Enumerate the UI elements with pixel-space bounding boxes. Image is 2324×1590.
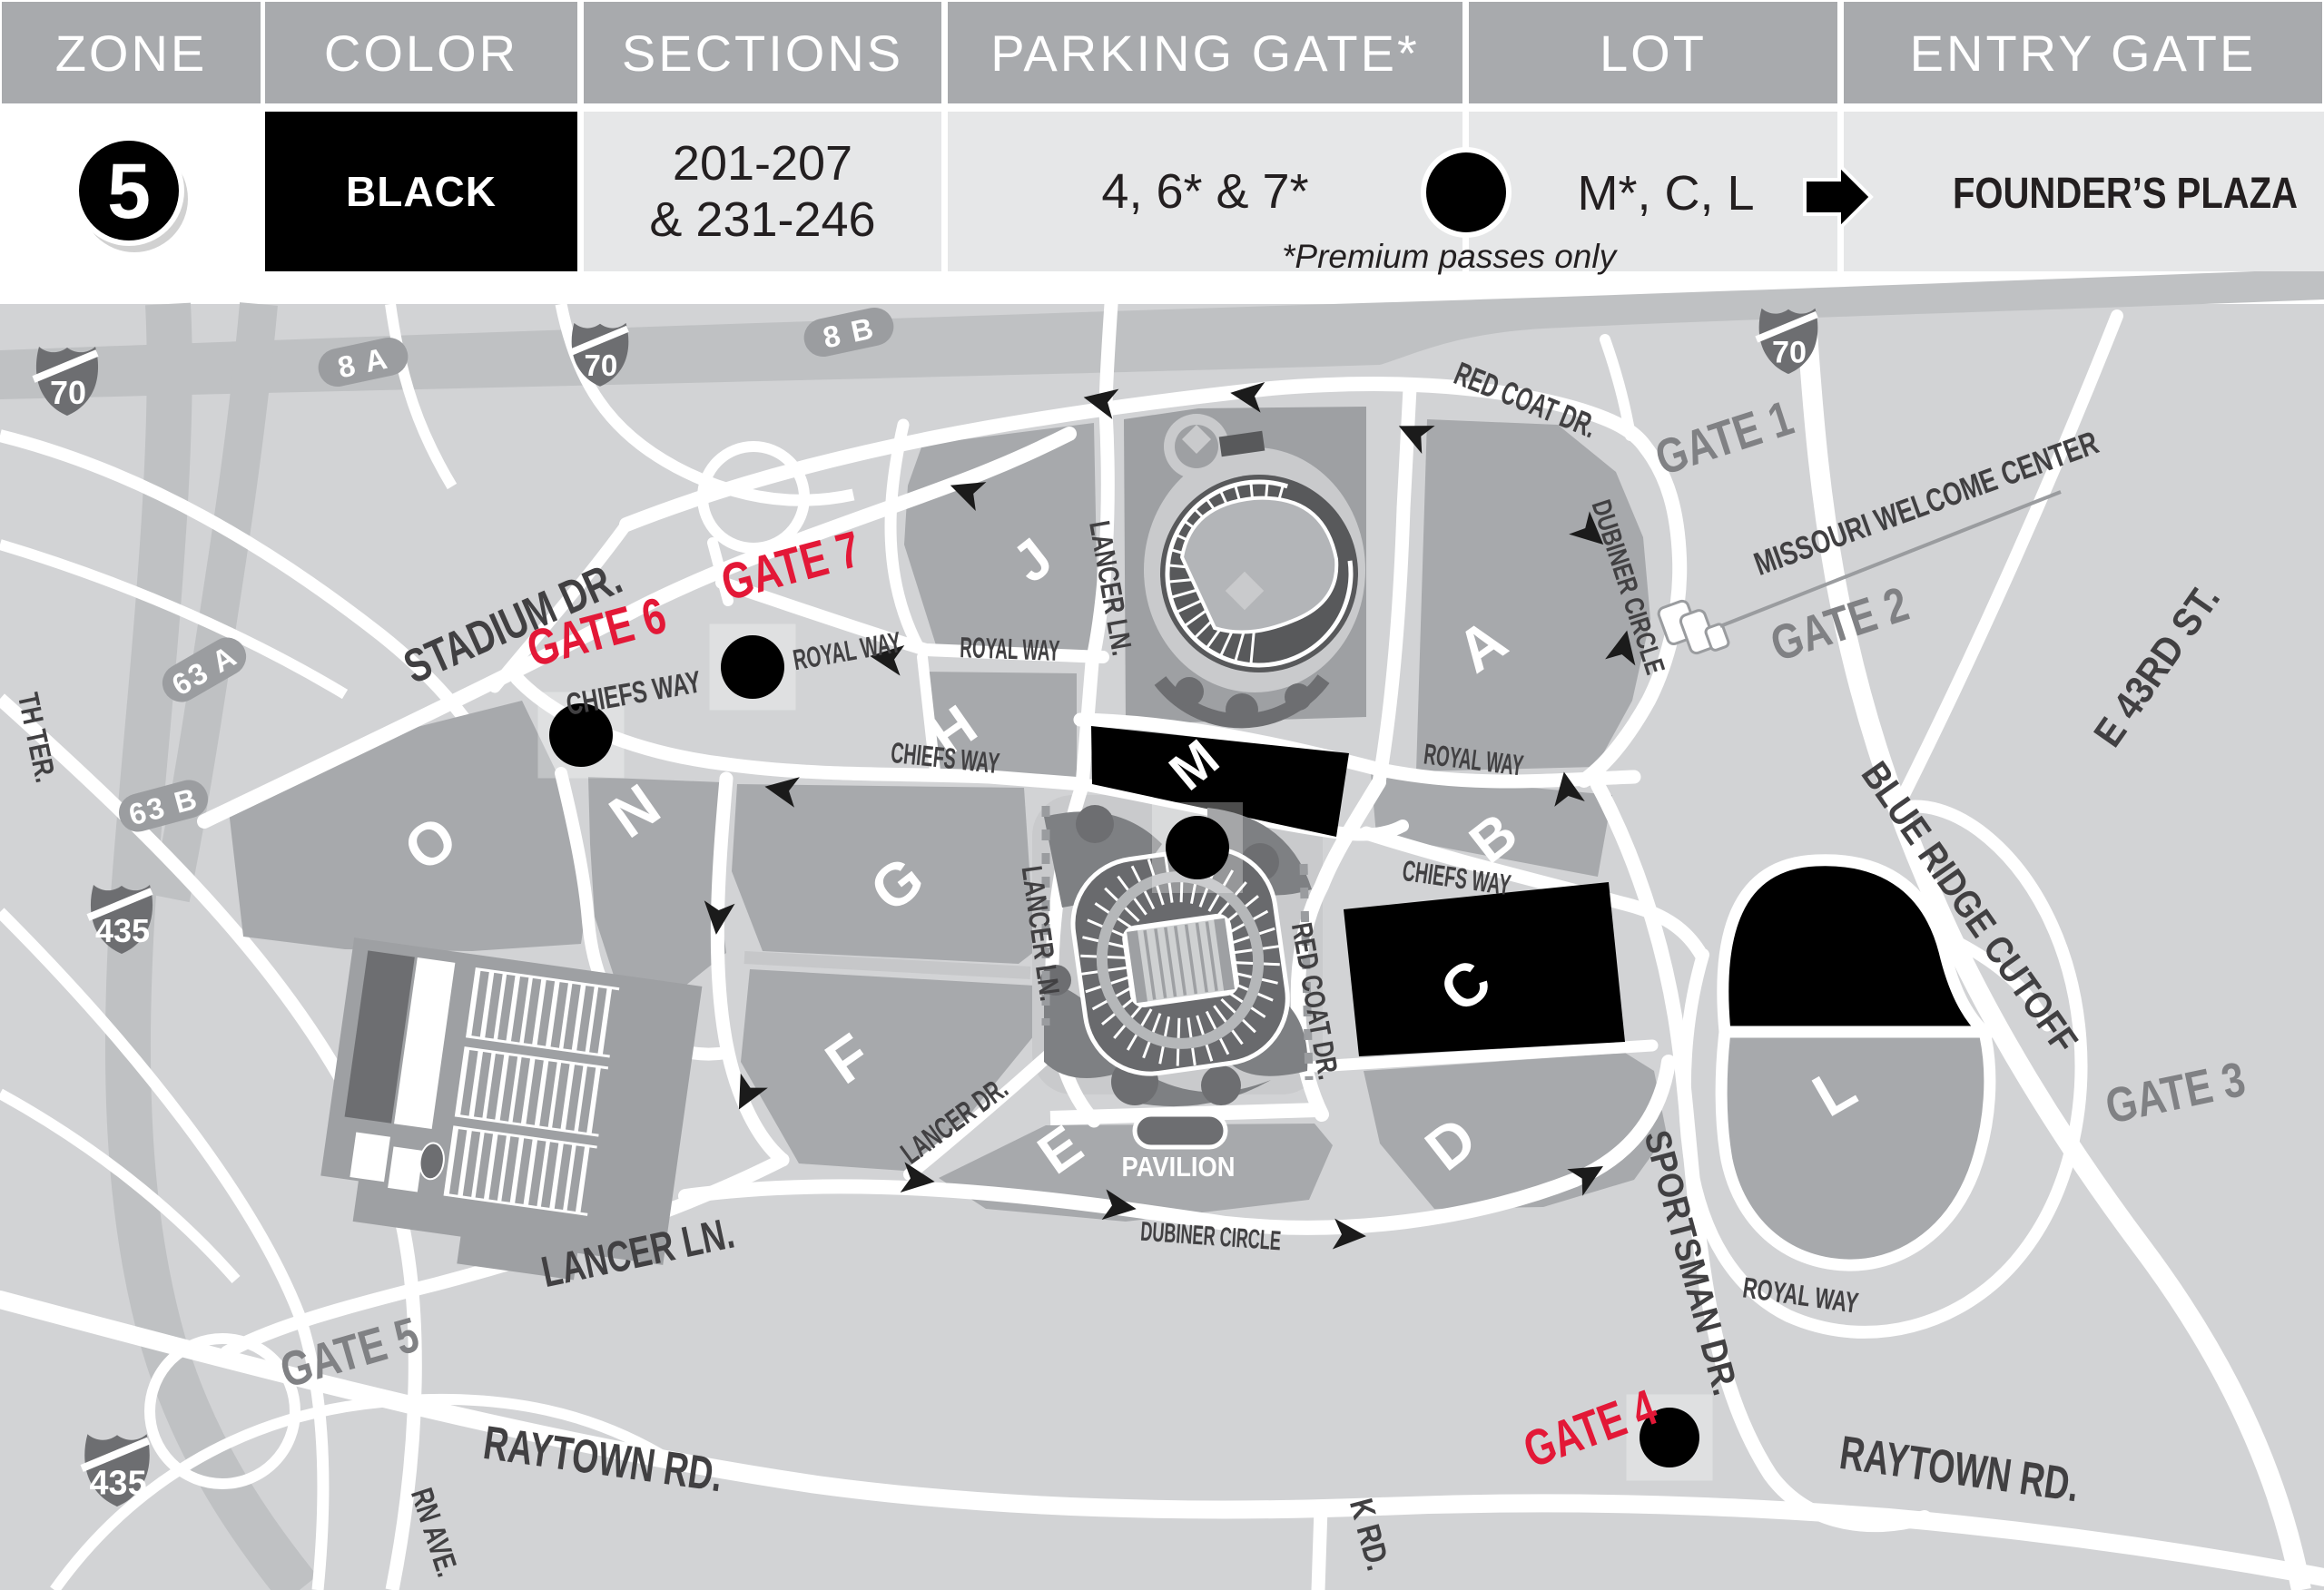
svg-text:ROYAL WAY: ROYAL WAY bbox=[960, 631, 1060, 667]
svg-text:PAVILION: PAVILION bbox=[1122, 1151, 1236, 1183]
svg-text:M*, C, L: M*, C, L bbox=[1577, 166, 1754, 221]
svg-text:70: 70 bbox=[50, 374, 86, 411]
svg-text:435: 435 bbox=[90, 1464, 147, 1502]
svg-text:5: 5 bbox=[107, 148, 151, 235]
svg-text:FOUNDER’S PLAZA: FOUNDER’S PLAZA bbox=[1953, 170, 2298, 218]
svg-text:70: 70 bbox=[585, 349, 618, 383]
svg-text:435: 435 bbox=[95, 912, 150, 949]
svg-text:70: 70 bbox=[1772, 336, 1807, 370]
